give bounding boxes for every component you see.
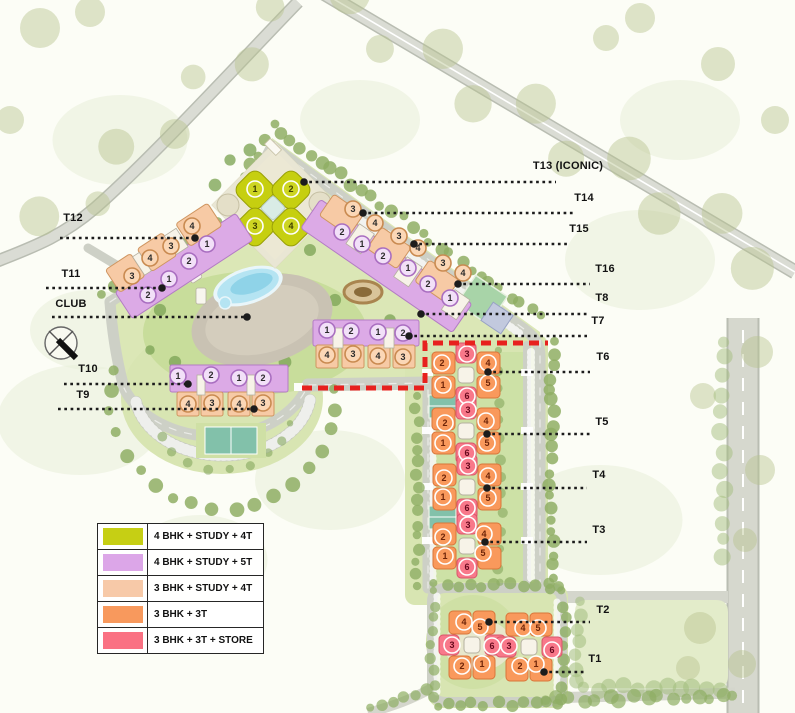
T1-unit-6-number: 6 (549, 645, 554, 655)
label-t9: T9 (76, 389, 89, 401)
T13-unit-1-number: 1 (252, 184, 257, 194)
label-club: CLUB (55, 298, 86, 310)
legend-row: 4 BHK + STUDY + 5T (98, 550, 263, 576)
leader-dot-t1 (540, 668, 548, 676)
T4-unit-6-number: 6 (464, 503, 469, 513)
legend-row: 3 BHK + STUDY + 4T (98, 576, 263, 602)
T10-unit-3-number: 3 (209, 398, 214, 408)
legend-label: 4 BHK + STUDY + 4T (148, 531, 252, 542)
T6-unit-2-number: 2 (439, 358, 444, 368)
T7-unit-3-number: 3 (400, 352, 405, 362)
label-t14: T14 (574, 192, 594, 204)
leader-dot-t3 (481, 538, 489, 546)
site-plan: 1234342134213421413243121243124312431243… (0, 0, 795, 713)
T5-unit-4-number: 4 (483, 416, 488, 426)
T14-unit-4-number: 4 (372, 218, 377, 228)
T3-unit-1-number: 1 (442, 551, 447, 561)
T4-unit-5-number: 5 (485, 493, 490, 503)
T11-unit-2-number: 2 (145, 290, 150, 300)
T8-unit-1-number: 1 (324, 325, 329, 335)
leader-dot-t14 (359, 209, 367, 217)
T2-unit-5-number: 5 (477, 622, 482, 632)
legend-swatch (103, 554, 143, 571)
leader-dot-t10 (184, 380, 192, 388)
leader-dot-t6 (484, 368, 492, 376)
T1-unit-5-number: 5 (535, 623, 540, 633)
T13-unit-2-number: 2 (288, 184, 293, 194)
legend-swatch-cell (98, 628, 148, 653)
T7-unit-2-number: 2 (400, 328, 405, 338)
T4-unit-3-number: 3 (465, 461, 470, 471)
T5-unit-3-number: 3 (465, 405, 470, 415)
T9-unit-3-number: 3 (260, 398, 265, 408)
T6-unit-5-number: 5 (485, 378, 490, 388)
T16-unit-4-number: 4 (460, 268, 465, 278)
legend-swatch-cell (98, 602, 148, 627)
T3-unit-6-number: 6 (464, 562, 469, 572)
T16-unit-3-number: 3 (440, 258, 445, 268)
label-t2: T2 (596, 604, 609, 616)
T4-unit-4-number: 4 (485, 471, 490, 481)
amphitheatre (344, 281, 382, 303)
label-t5: T5 (595, 416, 608, 428)
T9-unit-2-number: 2 (260, 373, 265, 383)
label-t8: T8 (595, 292, 608, 304)
label-t6: T6 (596, 351, 609, 363)
T11-unit-3-number: 3 (129, 271, 134, 281)
T5-unit-5-number: 5 (484, 438, 489, 448)
T16-unit-1-number: 1 (447, 293, 452, 303)
T12-unit-4-number: 4 (189, 221, 194, 231)
legend-swatch (103, 528, 143, 545)
label-t16: T16 (595, 263, 615, 275)
T8-unit-4-number: 4 (324, 350, 329, 360)
T15-unit-1-number: 1 (405, 263, 410, 273)
legend-label: 4 BHK + STUDY + 5T (148, 557, 252, 568)
legend-swatch-cell (98, 524, 148, 549)
legend-swatch (103, 606, 143, 623)
label-t13: T13 (ICONIC) (533, 160, 603, 172)
leader-dot-t15 (410, 240, 418, 248)
T2-unit-6-number: 6 (489, 641, 494, 651)
leader-dot-t11 (158, 284, 166, 292)
T9-unit-1-number: 1 (236, 373, 241, 383)
leader-dot-t2 (485, 618, 493, 626)
T3-unit-5-number: 5 (480, 548, 485, 558)
legend-swatch-cell (98, 550, 148, 575)
T2-unit-4-number: 4 (461, 617, 466, 627)
T16-unit-2-number: 2 (425, 279, 430, 289)
T5-unit-2-number: 2 (442, 418, 447, 428)
T14-unit-3-number: 3 (350, 204, 355, 214)
T1-unit-4-number: 4 (520, 623, 525, 633)
T5-unit-1-number: 1 (440, 438, 445, 448)
T14-unit-1-number: 1 (359, 239, 364, 249)
T12-unit-3-number: 3 (168, 241, 173, 251)
T13-unit-4-number: 4 (288, 221, 293, 231)
T1-unit-1-number: 1 (533, 659, 538, 669)
compass-icon (45, 327, 77, 359)
T11-unit-1-number: 1 (166, 274, 171, 284)
T6-unit-1-number: 1 (440, 380, 445, 390)
T10-unit-1-number: 1 (175, 371, 180, 381)
label-t3: T3 (592, 524, 605, 536)
leader-dot-t7 (405, 332, 413, 340)
legend-swatch-cell (98, 576, 148, 601)
label-t12: T12 (63, 212, 83, 224)
T8-unit-3-number: 3 (350, 349, 355, 359)
leader-dot-t4 (483, 484, 491, 492)
T1-unit-2-number: 2 (517, 661, 522, 671)
leader-dot-t13 (300, 178, 308, 186)
legend-swatch (103, 580, 143, 597)
T2-unit-3-number: 3 (449, 640, 454, 650)
legend-label: 3 BHK + 3T (148, 609, 207, 620)
T7-unit-4-number: 4 (375, 351, 380, 361)
T4-unit-1-number: 1 (440, 492, 445, 502)
T2-unit-2-number: 2 (459, 661, 464, 671)
T8-unit-2-number: 2 (348, 326, 353, 336)
legend-label: 3 BHK + 3T + STORE (148, 635, 253, 646)
leader-dot-t12 (191, 234, 199, 242)
legend-row: 4 BHK + STUDY + 4T (98, 524, 263, 550)
T11-unit-4-number: 4 (147, 253, 152, 263)
leader-dot-t9 (250, 405, 258, 413)
T12-unit-1-number: 1 (204, 239, 209, 249)
T15-unit-2-number: 2 (380, 251, 385, 261)
T4-unit-2-number: 2 (441, 473, 446, 483)
T6-unit-6-number: 6 (464, 391, 469, 401)
label-t7: T7 (591, 315, 604, 327)
T3-unit-4-number: 4 (481, 529, 486, 539)
T14-unit-2-number: 2 (339, 227, 344, 237)
T1-unit-3-number: 3 (506, 641, 511, 651)
leader-dot-t8 (417, 310, 425, 318)
legend-label: 3 BHK + STUDY + 4T (148, 583, 252, 594)
label-t11: T11 (62, 268, 81, 280)
T7-unit-1-number: 1 (375, 327, 380, 337)
T6-unit-3-number: 3 (464, 349, 469, 359)
legend: 4 BHK + STUDY + 4T4 BHK + STUDY + 5T3 BH… (97, 523, 264, 654)
legend-row: 3 BHK + 3T (98, 602, 263, 628)
T2-unit-1-number: 1 (479, 659, 484, 669)
leader-dot-club (243, 313, 251, 321)
leader-dot-t16 (454, 280, 462, 288)
label-t4: T4 (592, 469, 606, 481)
legend-swatch (103, 632, 143, 649)
label-t10: T10 (78, 363, 98, 375)
T5-unit-6-number: 6 (464, 448, 469, 458)
tennis-court-south (196, 423, 266, 458)
legend-row: 3 BHK + 3T + STORE (98, 628, 263, 653)
T13-unit-3-number: 3 (252, 221, 257, 231)
T6-unit-4-number: 4 (485, 358, 490, 368)
label-t1: T1 (588, 653, 601, 665)
T12-unit-2-number: 2 (186, 256, 191, 266)
label-t15: T15 (569, 223, 589, 235)
leader-dot-t5 (483, 430, 491, 438)
T3-unit-2-number: 2 (440, 532, 445, 542)
T15-unit-3-number: 3 (396, 231, 401, 241)
T10-unit-2-number: 2 (208, 370, 213, 380)
T3-unit-3-number: 3 (465, 520, 470, 530)
